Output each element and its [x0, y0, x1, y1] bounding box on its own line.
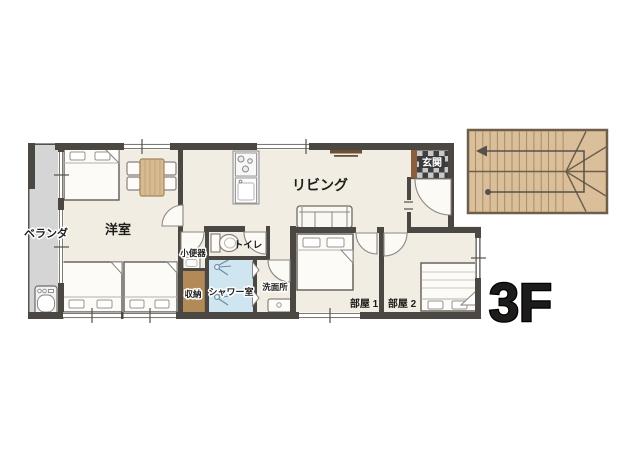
tv-stand — [334, 155, 358, 157]
bed-western-bottom-left — [62, 262, 122, 312]
washing-machine — [35, 286, 57, 315]
washbasin — [268, 299, 291, 312]
label-room1: 部屋 1 — [350, 297, 379, 310]
bed-room1 — [297, 234, 353, 290]
sofa — [297, 206, 352, 228]
label-storage: 収納 — [184, 289, 201, 299]
bed-room2 — [421, 263, 477, 311]
bed-western-top — [64, 149, 119, 200]
label-toilet: トイレ — [234, 240, 263, 251]
label-veranda: ベランダ — [24, 226, 68, 240]
label-living: リビング — [292, 177, 348, 193]
kitchen-unit — [233, 151, 259, 204]
bed-western-bottom-right — [124, 262, 177, 312]
label-entrance: 玄関 — [422, 156, 442, 169]
stairs-start-dot — [485, 189, 491, 195]
label-room2: 部屋 2 — [388, 297, 417, 310]
label-washroom: 洗面所 — [262, 282, 288, 292]
staircase — [468, 130, 607, 213]
dining-set — [127, 159, 176, 196]
floor-number: 3F — [489, 273, 552, 333]
label-shower-room: シャワー室 — [208, 286, 253, 297]
floor-plan-page: ベランダ 洋室 リビング 玄関 小便器 トイレ シャワー室 洗面所 収納 部屋 … — [0, 0, 640, 453]
floor-plan: ベランダ 洋室 リビング 玄関 小便器 トイレ シャワー室 洗面所 収納 部屋 … — [0, 0, 640, 453]
label-urinal: 小便器 — [179, 248, 206, 258]
label-western-room: 洋室 — [105, 222, 131, 237]
urinal-fixture — [183, 257, 200, 269]
